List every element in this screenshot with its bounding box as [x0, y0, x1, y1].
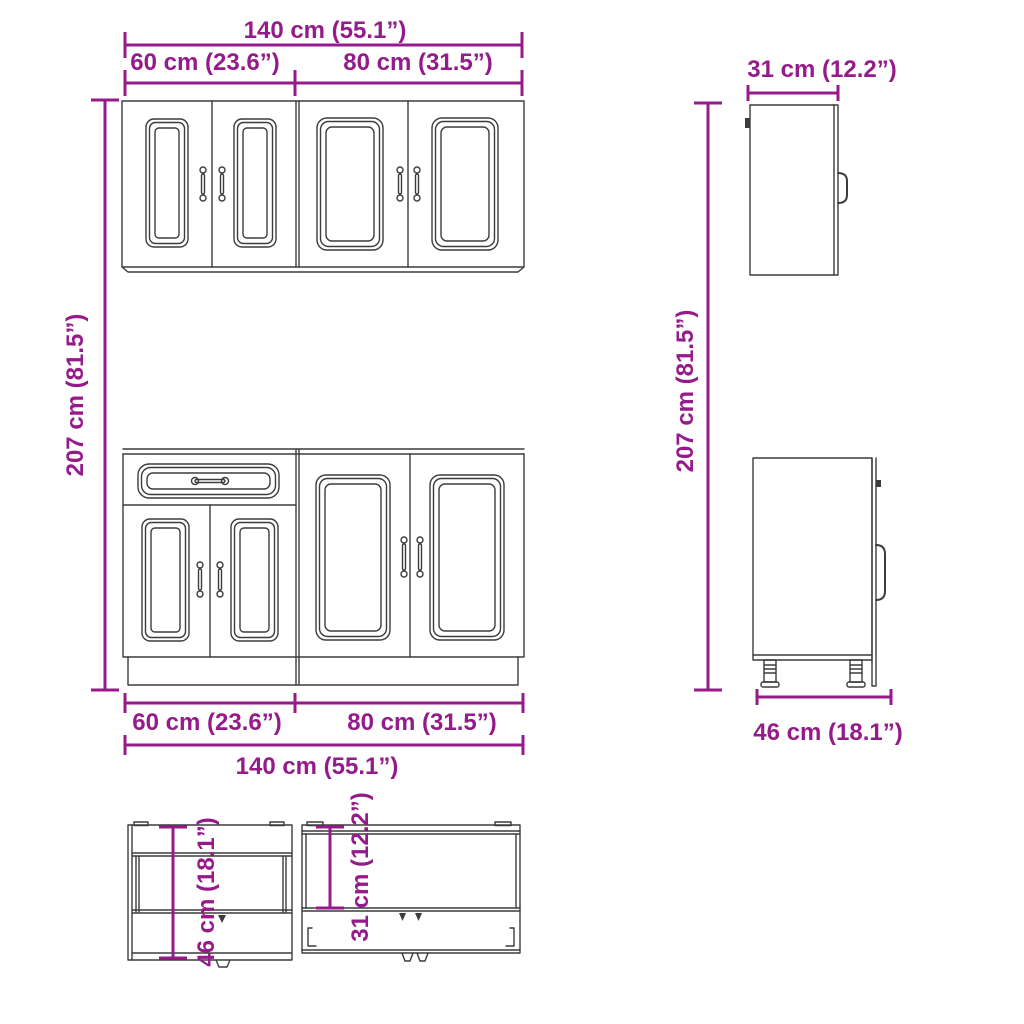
dim-label-top-view-wall-depth: 31 cm (12.2”)	[348, 792, 374, 941]
dim-label-bottom-total-width: 140 cm (55.1”)	[236, 754, 399, 780]
wall-cabinet-side-view	[742, 78, 852, 288]
dim-label-top-view-base-depth: 46 cm (18.1”)	[194, 817, 220, 966]
wall-cabinet-top-view	[298, 820, 524, 972]
dim-label-left-total-height: 207 cm (81.5”)	[63, 314, 89, 477]
base-cabinet-side-view	[748, 450, 898, 712]
dim-label-right-total-height: 207 cm (81.5”)	[673, 310, 699, 473]
dim-label-wall-cabinet-depth: 31 cm (12.2”)	[747, 57, 896, 83]
wall-cabinets-front-view	[120, 95, 530, 280]
dim-label-bottom-right-width: 80 cm (31.5”)	[347, 710, 496, 736]
dim-label-base-cabinet-depth: 46 cm (18.1”)	[753, 720, 902, 746]
dim-label-bottom-left-width: 60 cm (23.6”)	[132, 710, 281, 736]
dim-label-top-left-width: 60 cm (23.6”)	[130, 50, 279, 76]
technical-drawing-canvas: 140 cm (55.1”) 60 cm (23.6”) 80 cm (31.5…	[0, 0, 1024, 1024]
dim-label-top-total-width: 140 cm (55.1”)	[244, 18, 407, 44]
dim-label-top-right-width: 80 cm (31.5”)	[343, 50, 492, 76]
base-cabinets-front-view	[120, 443, 530, 693]
